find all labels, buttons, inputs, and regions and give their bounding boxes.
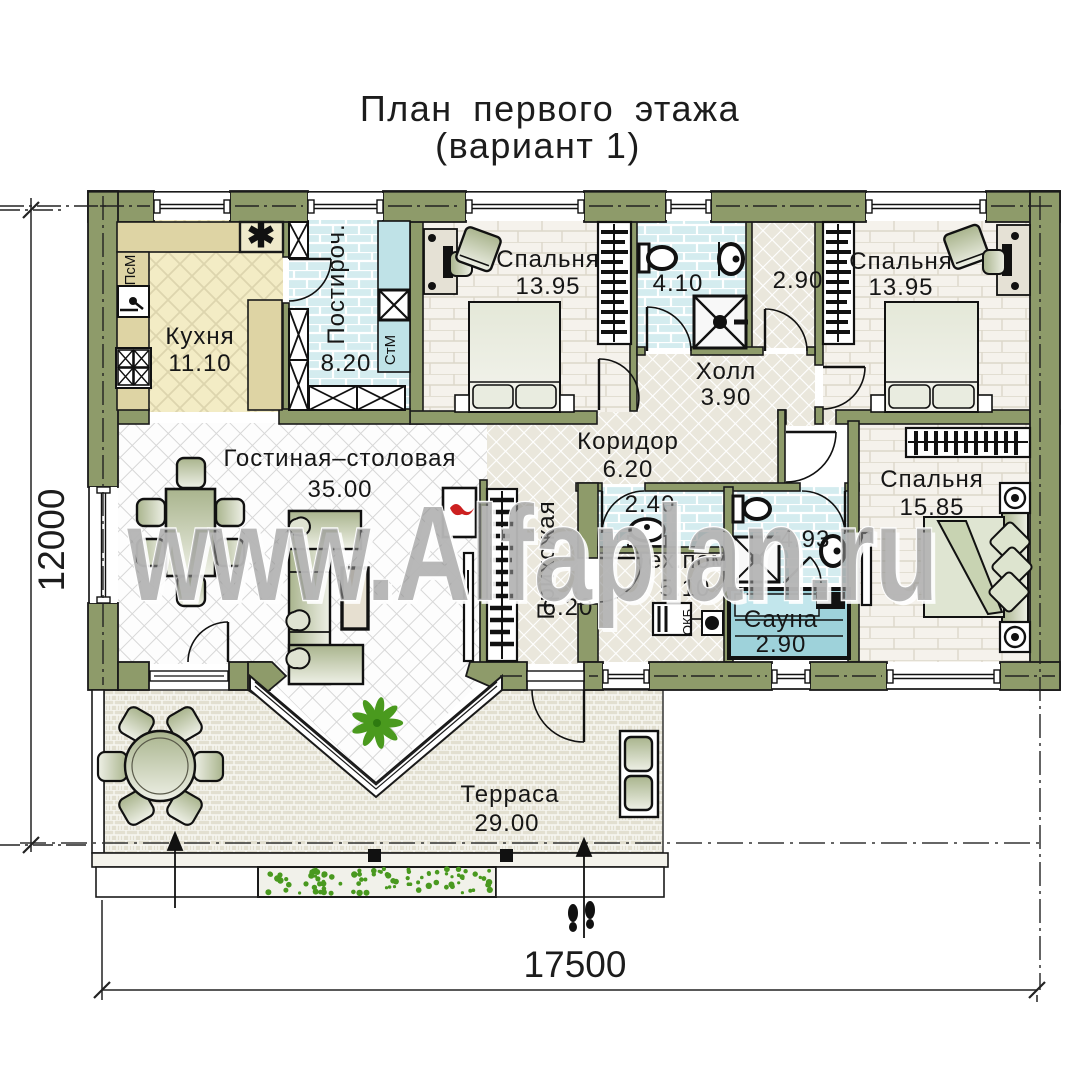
svg-text:13.95: 13.95 bbox=[868, 274, 933, 301]
svg-text:Спальня: Спальня bbox=[496, 246, 599, 273]
svg-text:13.95: 13.95 bbox=[515, 273, 580, 300]
svg-text:12000: 12000 bbox=[31, 489, 72, 592]
svg-text:Коридор: Коридор bbox=[577, 428, 679, 455]
svg-text:План первого этажа: План первого этажа bbox=[360, 88, 740, 129]
svg-text:3.90: 3.90 bbox=[701, 384, 752, 411]
svg-text:11.10: 11.10 bbox=[168, 350, 231, 377]
svg-text:✱: ✱ bbox=[247, 217, 276, 255]
svg-text:2.90: 2.90 bbox=[756, 631, 807, 658]
svg-text:Постироч.: Постироч. bbox=[323, 223, 350, 344]
svg-text:4.10: 4.10 bbox=[653, 270, 704, 297]
svg-text:2.90: 2.90 bbox=[773, 267, 824, 294]
svg-text:Терраса: Терраса bbox=[460, 781, 559, 808]
svg-text:29.00: 29.00 bbox=[474, 810, 539, 837]
svg-text:17500: 17500 bbox=[524, 944, 627, 985]
svg-text:ПсМ: ПсМ bbox=[122, 255, 139, 286]
svg-text:(вариант 1): (вариант 1) bbox=[435, 125, 641, 166]
svg-text:СтМ: СтМ bbox=[382, 335, 399, 365]
svg-text:Кухня: Кухня bbox=[165, 323, 234, 350]
svg-text:Спальня: Спальня bbox=[849, 248, 952, 275]
svg-text:www.Alfaplan.ru: www.Alfaplan.ru bbox=[127, 478, 939, 629]
svg-text:Гостиная–столовая: Гостиная–столовая bbox=[223, 445, 456, 472]
svg-text:8.20: 8.20 bbox=[321, 350, 372, 377]
svg-text:Холл: Холл bbox=[696, 358, 757, 385]
